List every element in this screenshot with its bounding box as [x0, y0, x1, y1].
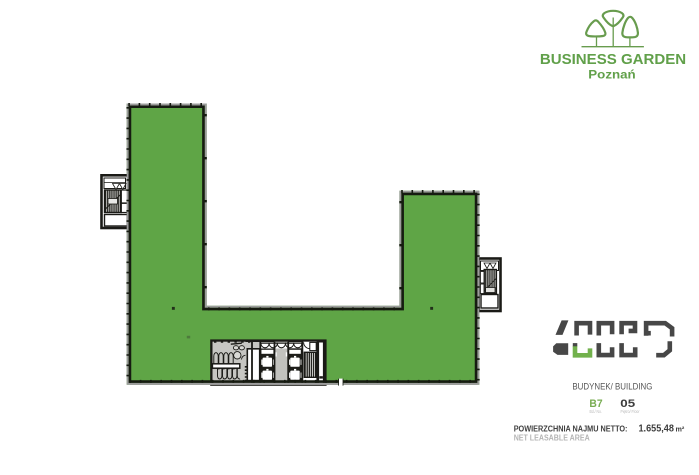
svg-text:NET LEASABLE AREA: NET LEASABLE AREA	[514, 434, 590, 443]
svg-text:B7: B7	[589, 398, 602, 410]
svg-text:m²: m²	[676, 425, 685, 434]
svg-text:Poznań: Poznań	[588, 67, 635, 81]
svg-text:BUSINESS GARDEN: BUSINESS GARDEN	[540, 51, 686, 68]
svg-text:Bd./ No.: Bd./ No.	[590, 409, 602, 415]
svg-text:1.655,48: 1.655,48	[639, 424, 675, 435]
svg-text:05: 05	[620, 398, 636, 410]
svg-text:POWIERZCHNIA NAJMU NETTO:: POWIERZCHNIA NAJMU NETTO:	[514, 423, 628, 433]
svg-text:Piętro/ Floor: Piętro/ Floor	[621, 409, 640, 415]
svg-text:BUDYNEK/ BUILDING: BUDYNEK/ BUILDING	[572, 382, 652, 392]
